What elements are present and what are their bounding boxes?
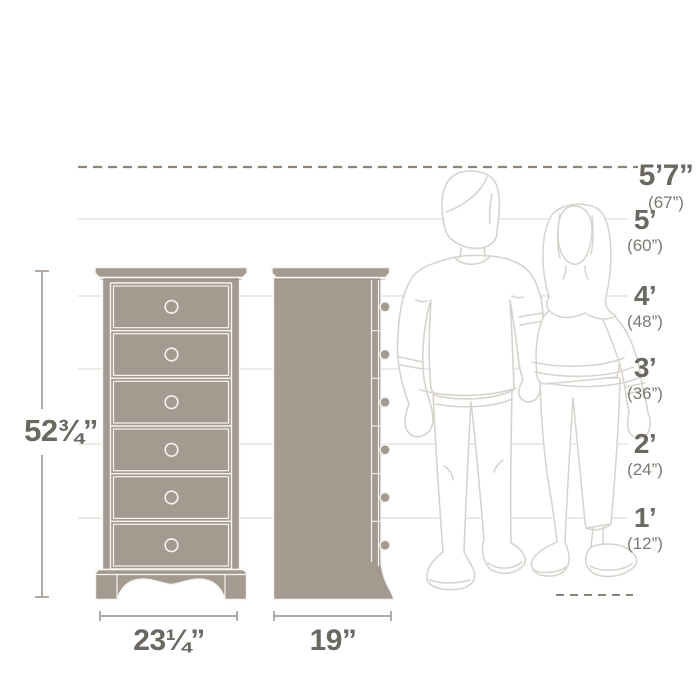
scale-sub-3ft: (36”)	[627, 385, 663, 402]
depth-dimension-label: 19”	[310, 624, 357, 658]
scale-sub-2ft: (24”)	[627, 461, 663, 478]
height-scale-label-1ft: 1’ (12”)	[627, 504, 663, 552]
diagram-canvas	[0, 0, 700, 700]
side-body	[274, 278, 394, 600]
scale-sub-1ft: (12”)	[627, 535, 663, 552]
scale-main-2ft: 2’	[627, 430, 663, 458]
scale-main-5ft: 5’	[627, 206, 663, 234]
height-scale-label-3ft: 3’ (36”)	[627, 354, 663, 402]
front-cornice	[95, 268, 247, 278]
scale-main-4ft: 4’	[627, 282, 663, 310]
scale-sub-4ft: (48”)	[627, 313, 663, 330]
scale-main-3ft: 3’	[627, 354, 663, 382]
scale-sub-5ft: (60”)	[627, 237, 663, 254]
chest-front-view	[95, 268, 247, 600]
height-scale-label-5ft: 5’ (60”)	[627, 206, 663, 254]
height-scale-label-4ft: 4’ (48”)	[627, 282, 663, 330]
chest-side-view	[272, 268, 394, 600]
width-dimension-label: 23¼”	[133, 624, 204, 658]
width-dimension-line	[100, 611, 237, 621]
man-figure	[397, 171, 543, 590]
furniture-dimensions-diagram: 52¾” 23¼” 19” 5’7” (67”) 5’ (60”) 4’ (48…	[0, 0, 700, 700]
height-scale-label-2ft: 2’ (24”)	[627, 430, 663, 478]
depth-dimension-line	[274, 611, 391, 621]
side-cornice	[272, 268, 390, 278]
scale-main-5ft7: 5’7”	[639, 161, 694, 191]
height-dimension-label: 52¾”	[24, 413, 98, 449]
scale-main-1ft: 1’	[627, 504, 663, 532]
